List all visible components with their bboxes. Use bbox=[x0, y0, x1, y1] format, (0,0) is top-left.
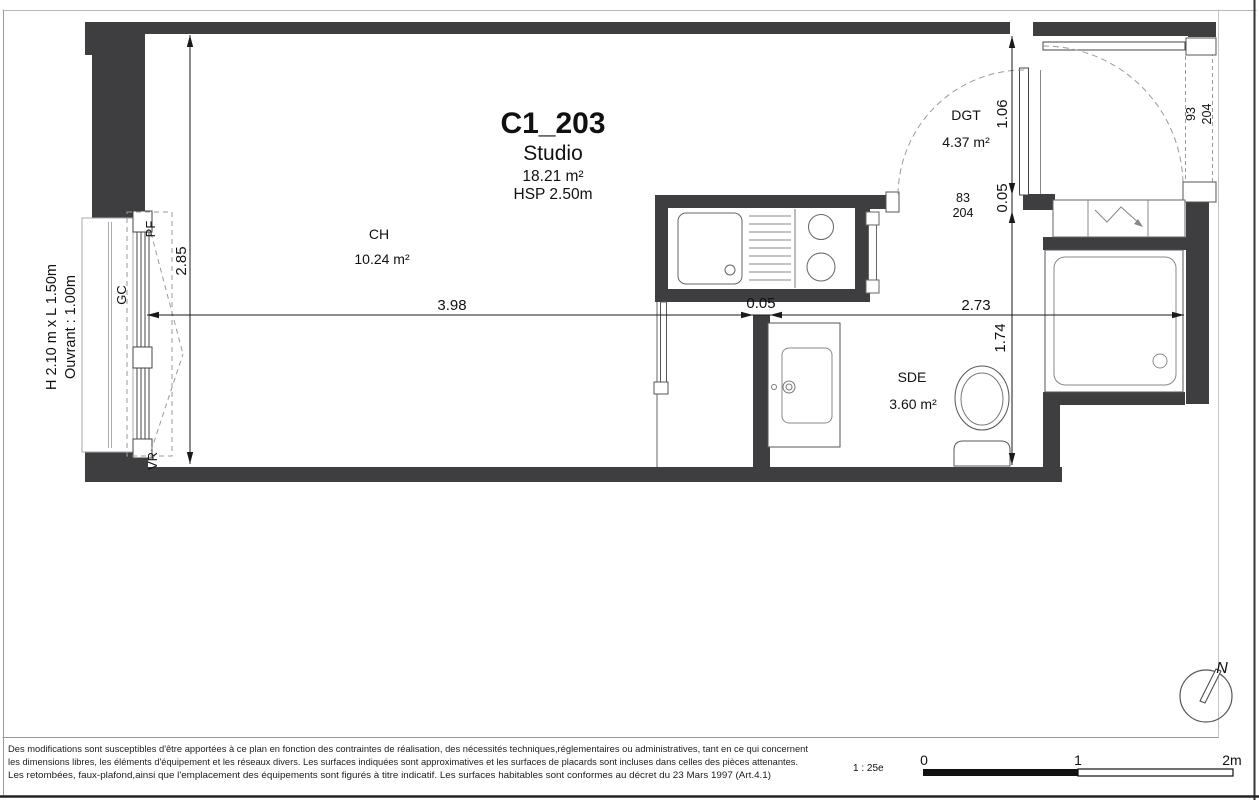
sliding-door-bracket bbox=[654, 382, 668, 394]
window-swing-dash bbox=[151, 354, 183, 451]
scale-tick-0: 0 bbox=[920, 752, 928, 768]
ceiling-height: HSP 2.50m bbox=[514, 186, 593, 203]
wall-cabinet-band bbox=[1043, 237, 1187, 250]
entry-jamb-plate bbox=[1183, 182, 1216, 202]
dgt-door-leaf bbox=[1020, 68, 1029, 195]
dgt-door-swing-arc bbox=[898, 70, 1024, 196]
dim-wall-thickness: 0.05 bbox=[746, 295, 775, 312]
wall-kitchen-top bbox=[655, 195, 870, 208]
room-sde-area: 3.60 m² bbox=[889, 396, 937, 412]
room-dgt-area: 4.37 m² bbox=[942, 134, 990, 150]
wall-bottom bbox=[85, 467, 1062, 482]
room-ch-area: 10.24 m² bbox=[354, 251, 410, 267]
wall-sde-west bbox=[753, 315, 770, 482]
room-ch-code: CH bbox=[369, 226, 389, 242]
window-frame-block bbox=[133, 347, 152, 368]
window-pf-tag: PF bbox=[143, 221, 158, 238]
door-entry-width: 93 bbox=[1184, 107, 1198, 121]
hob-burner bbox=[809, 215, 834, 240]
wall-step bbox=[1043, 398, 1060, 470]
scale-label: 1 : 25e bbox=[853, 763, 884, 774]
dim-right-width: 2.73 bbox=[961, 297, 990, 314]
wall-left-upper bbox=[92, 34, 145, 218]
disclaimer-line-2: les dimensions libres, les éléments d'éq… bbox=[8, 757, 798, 767]
wall-kitchen-left bbox=[655, 195, 668, 302]
scale-tick-2m: 2m bbox=[1222, 752, 1241, 768]
guardrail-box bbox=[82, 218, 133, 452]
floor-plan-canvas: C1_203 Studio 18.21 m² HSP 2.50m CH 10.2… bbox=[0, 0, 1259, 800]
stub-cap bbox=[886, 192, 899, 212]
entry-door-swing-arc bbox=[1043, 46, 1183, 186]
dim-main-width: 3.98 bbox=[437, 297, 466, 314]
hob-burner bbox=[807, 253, 835, 281]
toilet-bowl bbox=[955, 366, 1009, 430]
north-label: N bbox=[1216, 660, 1228, 677]
dim-left-height: 2.85 bbox=[173, 246, 190, 275]
dim-arrow bbox=[187, 452, 193, 464]
scale-bar-black bbox=[923, 769, 1078, 776]
floor-plan-sheet: C1_203 Studio 18.21 m² HSP 2.50m CH 10.2… bbox=[0, 0, 1259, 800]
scale-bar-white bbox=[1078, 769, 1233, 776]
dim-arrow bbox=[770, 312, 782, 318]
footer: Des modifications sont susceptibles d'êt… bbox=[8, 660, 1242, 780]
wall-top-main bbox=[145, 22, 1010, 34]
wall-topright-corner bbox=[1188, 22, 1216, 37]
vanity-unit bbox=[768, 323, 840, 447]
north-arrow: N bbox=[1180, 660, 1232, 722]
drainboard-lines bbox=[749, 216, 791, 280]
dim-arrow bbox=[187, 35, 193, 47]
guardrail-gc-tag: GC bbox=[114, 285, 129, 305]
room-dgt-code: DGT bbox=[951, 107, 981, 123]
room-sde-code: SDE bbox=[898, 369, 927, 385]
dim-sde-height: 1.74 bbox=[992, 323, 1009, 352]
dim-dgt-door-clear: 1.06 bbox=[994, 99, 1011, 128]
dim-arrow bbox=[741, 312, 753, 318]
window-assembly bbox=[82, 211, 183, 458]
unit-type: Studio bbox=[523, 142, 583, 165]
entry-door-leaf bbox=[1043, 42, 1185, 50]
disclaimer-line-3: Les retombées, faux-plafond,ainsi que l'… bbox=[8, 770, 771, 780]
shutter-vr-tag: VR bbox=[145, 452, 160, 470]
disclaimer-line-1: Des modifications sont susceptibles d'êt… bbox=[8, 744, 808, 754]
wall-hinge-block bbox=[1023, 194, 1055, 210]
window-opening-label: Ouvrant : 1.00m bbox=[63, 275, 79, 379]
kitchen-sink bbox=[678, 213, 742, 284]
dim-dgt-door-gap: 0.05 bbox=[994, 183, 1011, 212]
door-sde-height: 204 bbox=[953, 206, 974, 220]
unit-area: 18.21 m² bbox=[522, 168, 583, 185]
wall-shower-south bbox=[1043, 392, 1185, 405]
door-sde-width: 83 bbox=[956, 191, 970, 205]
shower-tray bbox=[1045, 250, 1183, 392]
closet-cabinet bbox=[1053, 200, 1185, 237]
dim-arrow bbox=[1009, 36, 1015, 48]
window-size-label: H 2.10 m x L 1.50m bbox=[44, 264, 60, 390]
door-entry-height: 204 bbox=[1200, 104, 1214, 125]
unit-id: C1_203 bbox=[500, 107, 605, 140]
toilet-base bbox=[954, 441, 1010, 466]
wall-top-right bbox=[1033, 22, 1188, 36]
scale-tick-1: 1 bbox=[1074, 752, 1082, 768]
duct-end bbox=[866, 280, 879, 293]
entry-jamb-plate bbox=[1186, 38, 1216, 55]
wall-right bbox=[1186, 200, 1209, 404]
duct-end bbox=[866, 212, 879, 225]
